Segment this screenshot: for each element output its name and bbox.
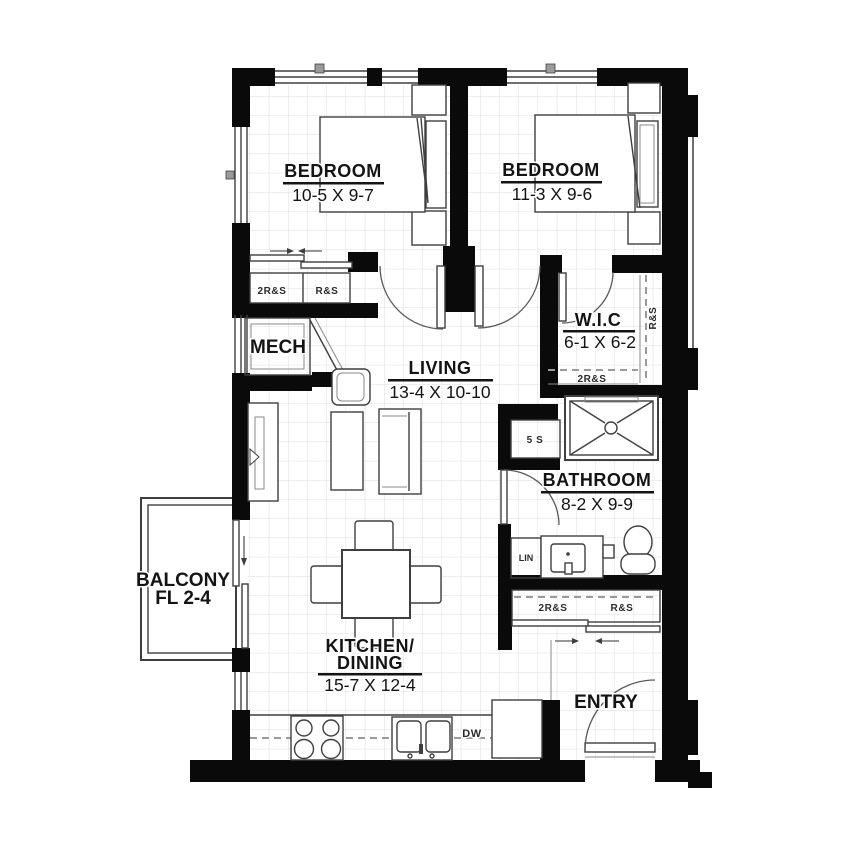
window-bedroom1-a [275,64,367,85]
tv-console-icon [248,403,278,501]
bathroom-name: BATHROOM [543,470,652,490]
floorplan-drawing: BEDROOM 10-5 X 9-7 BEDROOM 11-3 X 9-6 LI… [0,0,844,844]
vanity-sink-icon [541,536,614,578]
balcony-floors: FL 2-4 [155,588,211,609]
bedroom1-name: BEDROOM [284,161,382,181]
toilet-icon [621,526,655,574]
bedroom2-name: BEDROOM [502,160,600,180]
floorplan-canvas: BEDROOM 10-5 X 9-7 BEDROOM 11-3 X 9-6 LI… [0,0,844,844]
living-dims: 13-4 X 10-10 [389,382,490,402]
bath-closet-right-label: R&S [611,603,634,614]
bedroom2-dims: 11-3 X 9-6 [512,184,592,204]
bedroom1-dims: 10-5 X 9-7 [292,185,374,205]
stove-icon [291,716,343,760]
mech-name: MECH [250,337,306,358]
wic-rod-label: R&S [648,307,659,330]
bathroom-dims: 8-2 X 9-9 [561,494,633,514]
armchair-icon [332,369,370,405]
wic-dims: 6-1 X 6-2 [564,332,636,352]
wic-name: W.I.C [575,310,622,330]
coffee-table-icon [331,412,363,490]
bath-closet-left-label: 2R&S [538,603,567,614]
window-bedroom1-b [382,69,418,85]
linen-label: LIN [519,553,534,563]
fridge-icon [492,700,542,758]
dishwasher-label: DW [462,728,482,740]
window-bedroom2 [507,64,597,85]
kitchen-name-line2: DINING [337,653,403,673]
wic-bottom-label: 2R&S [577,374,606,385]
shower-icon [565,396,658,460]
sofa-icon [379,409,421,494]
entry-name: ENTRY [574,692,638,713]
living-name: LIVING [408,358,471,378]
bedroom1-closet-right-label: R&S [316,286,339,297]
kitchen-sink-icon [392,717,452,760]
window-kitchen-left [235,672,247,710]
window-bedroom1-left [226,127,247,223]
kitchen-dims: 15-7 X 12-4 [324,675,416,695]
hall-shelf-label: 5 S [527,435,544,446]
bedroom1-closet-left-label: 2R&S [257,286,286,297]
